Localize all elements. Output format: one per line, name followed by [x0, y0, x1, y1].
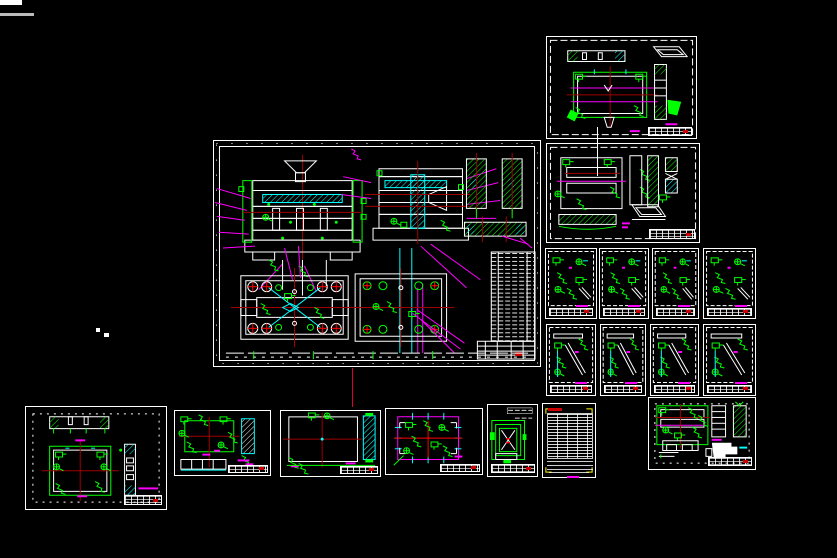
- approval-stamp: [686, 387, 691, 390]
- a-linework: [26, 407, 166, 509]
- approval-stamp: [686, 233, 691, 236]
- approval-stamp: [686, 310, 691, 313]
- sheet-bottom-c[interactable]: [280, 410, 381, 477]
- sheet-small-detail[interactable]: [652, 248, 699, 319]
- approval-stamp: [743, 387, 748, 390]
- bom-rows: [547, 413, 593, 459]
- title-block: [604, 385, 642, 393]
- title-block: [654, 385, 695, 393]
- sheet-bottom-right[interactable]: [648, 397, 756, 470]
- sheet-small-detail[interactable]: [703, 248, 756, 319]
- sheet-small-detail[interactable]: [703, 324, 756, 396]
- annotation-text: [735, 382, 747, 384]
- title-block: [228, 465, 268, 473]
- title-block: [603, 308, 645, 316]
- sheet-small-detail[interactable]: [599, 248, 649, 319]
- sheet-bottom-left[interactable]: [25, 406, 167, 510]
- sheet-bottom-e[interactable]: [487, 404, 538, 477]
- approval-stamp: [683, 130, 688, 133]
- corner-text-fragment: [0, 13, 34, 16]
- stray-dot: [96, 328, 100, 332]
- annotation-text: [678, 382, 690, 384]
- title-block: [124, 495, 162, 505]
- annotation-text: [576, 305, 588, 307]
- sheet-bottom-b[interactable]: [174, 410, 271, 476]
- annotation-text: [575, 382, 587, 384]
- title-block: [707, 308, 752, 316]
- approval-stamp: [369, 468, 374, 471]
- title-block: [708, 457, 752, 466]
- approval-stamp: [526, 467, 531, 470]
- corner-ui-fragment: [0, 0, 22, 5]
- sheet-right-middle[interactable]: [546, 143, 700, 243]
- annotation-text: [678, 305, 690, 307]
- sheet-top-right[interactable]: [546, 36, 697, 139]
- approval-stamp: [743, 310, 748, 313]
- sheet-bottom-d[interactable]: [385, 408, 483, 475]
- title-block: [707, 385, 752, 393]
- title-block: [340, 466, 378, 474]
- tr-linework: [547, 37, 696, 138]
- white-connector-line: [597, 127, 598, 176]
- center-linework: [214, 141, 540, 366]
- title-block: [440, 464, 480, 472]
- title-block: [656, 308, 695, 316]
- annotation-text: [625, 382, 637, 384]
- approval-stamp: [153, 499, 158, 502]
- approval-stamp: [584, 310, 589, 313]
- title-block: [549, 308, 593, 316]
- drawing-canvas[interactable]: [0, 0, 837, 558]
- sheet-bom-table[interactable]: [542, 403, 596, 478]
- approval-stamp: [583, 387, 588, 390]
- title-block: [649, 229, 695, 239]
- red-heading-text: [548, 408, 562, 411]
- sheet-small-detail[interactable]: [546, 324, 596, 396]
- annotation-text: [735, 305, 747, 307]
- red-connector-line: [352, 368, 353, 407]
- approval-stamp: [633, 387, 638, 390]
- sheet-center-assembly[interactable]: [213, 140, 541, 367]
- approval-stamp: [471, 466, 476, 469]
- title-block: [491, 464, 535, 473]
- sheet-small-detail[interactable]: [600, 324, 646, 396]
- bom-bottom-row: [549, 472, 589, 475]
- stray-dot: [104, 333, 109, 337]
- approval-stamp: [259, 467, 264, 470]
- title-block: [648, 127, 692, 136]
- approval-stamp: [636, 310, 641, 313]
- approval-stamp: [743, 460, 748, 463]
- bom-footer-rows: [547, 461, 593, 470]
- sheet-small-detail[interactable]: [545, 248, 597, 319]
- annotation-text: [628, 305, 640, 307]
- rm-linework: [547, 144, 699, 242]
- sheet-small-detail[interactable]: [650, 324, 699, 396]
- annotation-text: [567, 476, 579, 478]
- title-block: [550, 385, 592, 393]
